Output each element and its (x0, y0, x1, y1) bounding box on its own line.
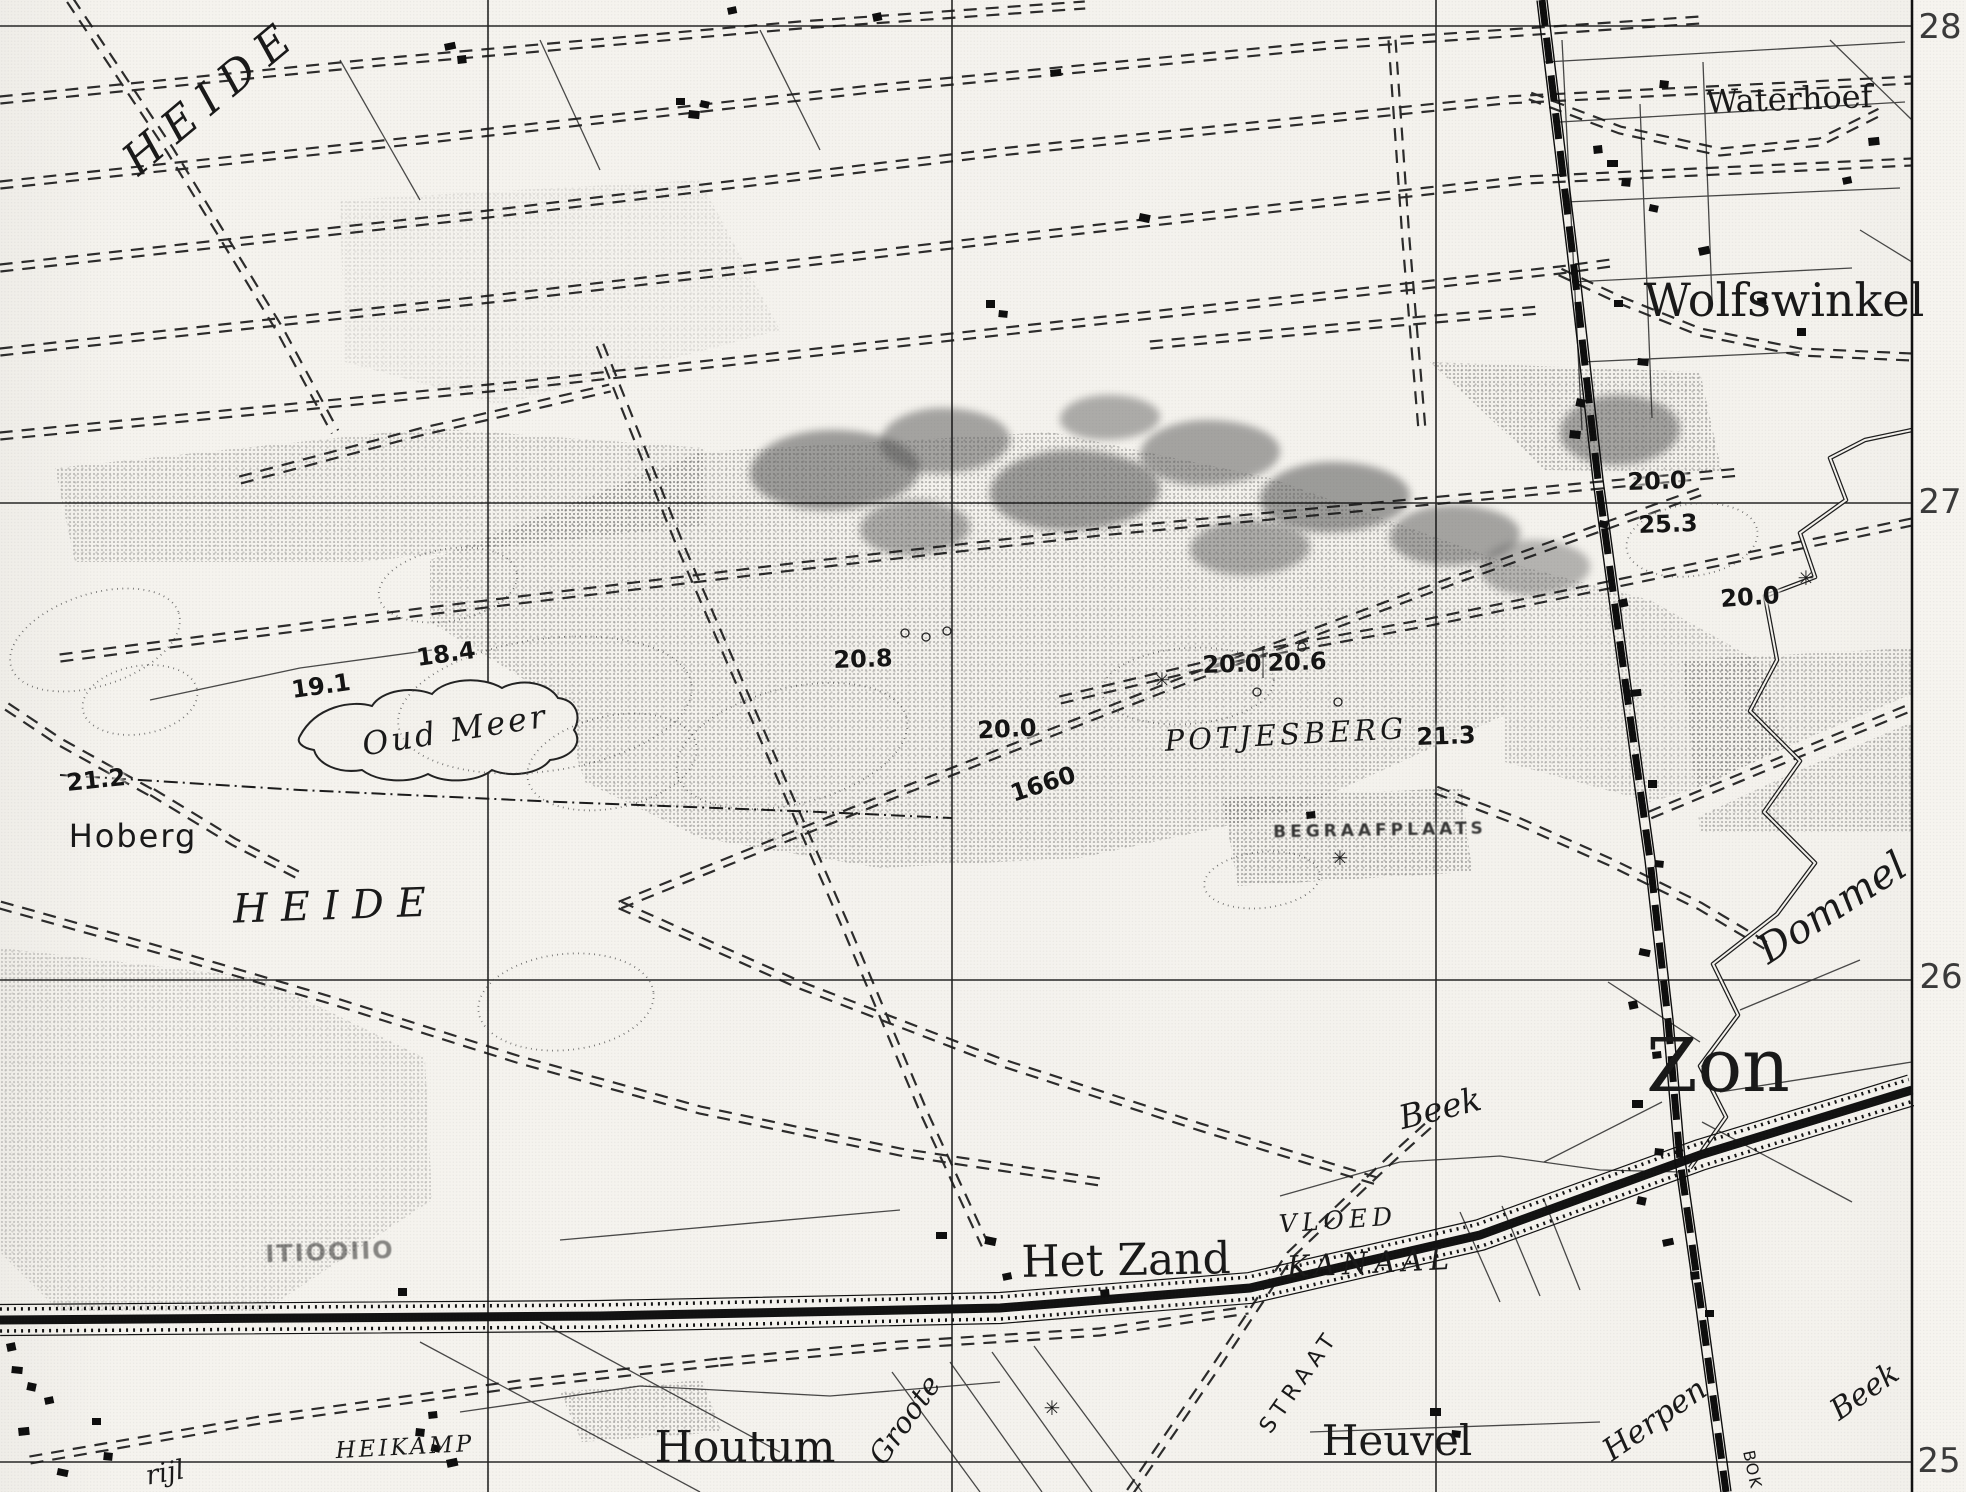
star-symbol: ✳ (1154, 668, 1171, 692)
label-waterhoef: Waterhoef (1705, 80, 1873, 118)
spot-height: 20.0 (977, 715, 1037, 742)
label-zon: Zon (1646, 1029, 1790, 1103)
label-rijt-fragment: rijl (144, 1456, 187, 1489)
grid-number-28: 28 (1918, 7, 1961, 47)
star-symbol: ✳ (1044, 1396, 1061, 1420)
spot-height: 25.3 (1638, 511, 1698, 537)
railway-line (1537, 0, 1731, 1492)
label-heuvel: Heuvel (1322, 1420, 1473, 1462)
spot-height: 20.8 (833, 646, 893, 672)
label-hoberg: Hoberg (69, 820, 198, 852)
grid-number-25: 25 (1917, 1441, 1960, 1481)
label-kanaal: KANAAL (1286, 1245, 1456, 1284)
map-margin (1914, 0, 1966, 1492)
km-grid (0, 0, 1912, 1492)
contour-rings (0, 495, 1762, 1059)
topographic-map-sheet: 28 27 26 25 HEIDE Waterhoef Wolfswinkel … (0, 0, 1966, 1492)
spot-height: 20.0 (1202, 651, 1262, 677)
star-symbol: ✳ (1332, 846, 1349, 870)
label-heide-south: HEIDE (232, 882, 439, 929)
spot-height: 20.6 (1267, 649, 1327, 675)
map-linework (0, 0, 1966, 1492)
label-wolfswinkel: Wolfswinkel (1644, 277, 1925, 323)
spot-height: 21.3 (1416, 723, 1476, 749)
star-symbol: ✳ (1798, 566, 1815, 590)
grid-number-26: 26 (1919, 957, 1962, 997)
label-het-zand: Het Zand (1021, 1237, 1231, 1285)
label-faint-marks: ITIOOIIO (265, 1238, 395, 1266)
spot-height: 20.0 (1720, 583, 1781, 611)
grid-number-27: 27 (1918, 482, 1961, 522)
label-houtum: Houtum (655, 1426, 836, 1470)
label-begraafplaats: BEGRAAFPLAATS (1273, 821, 1487, 842)
wilhelmina-canal (0, 1075, 1917, 1335)
unpaved-roads (0, 0, 1913, 1492)
spot-height: 20.0 (1627, 468, 1687, 494)
spot-height: 21.2 (65, 765, 126, 795)
